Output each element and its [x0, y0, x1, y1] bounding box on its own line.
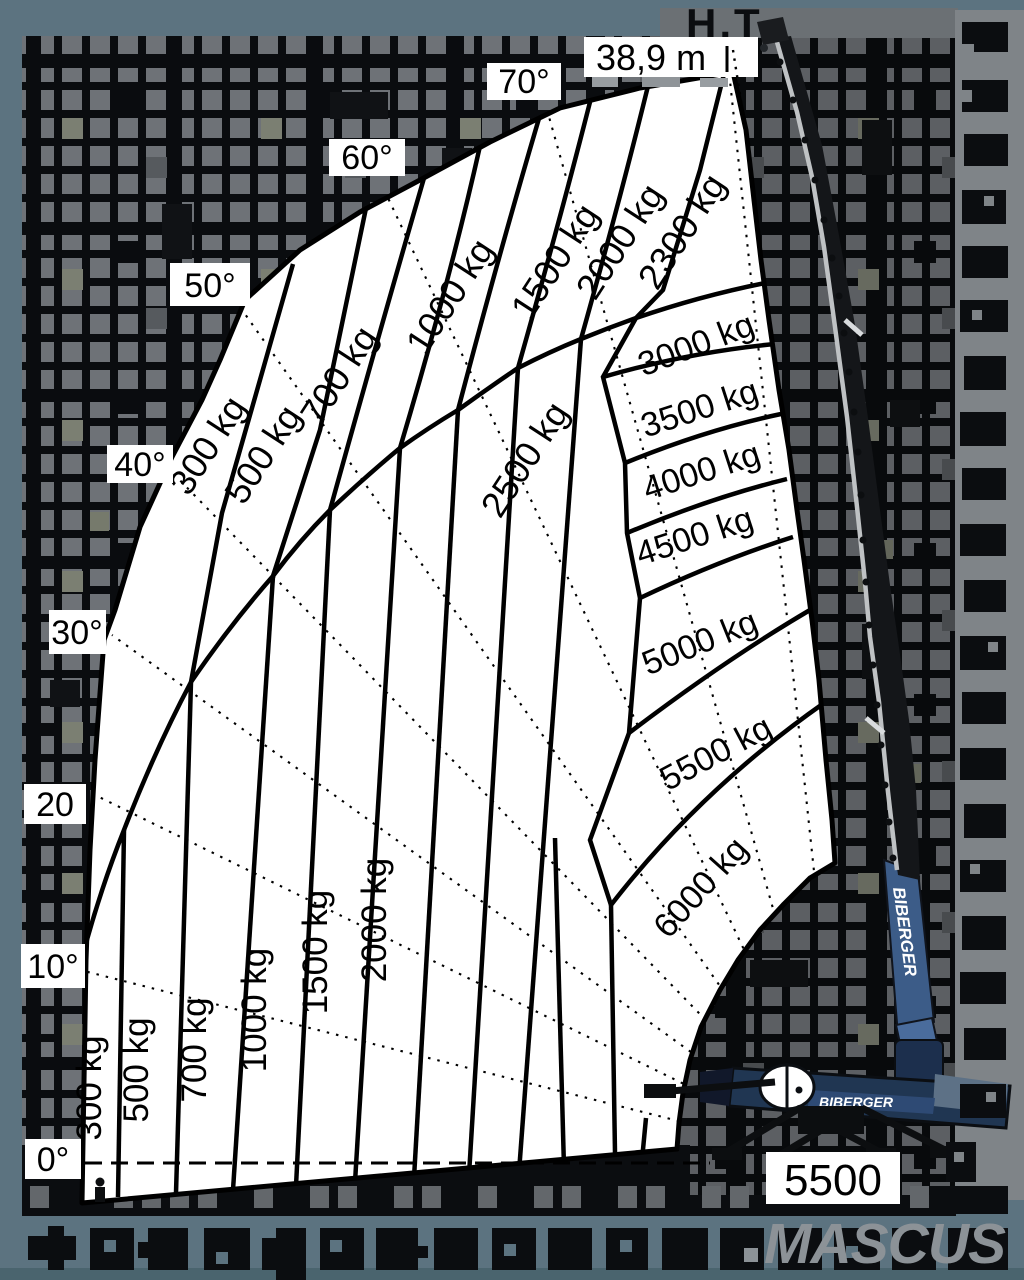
- svg-text:50°: 50°: [184, 267, 235, 305]
- svg-text:40°: 40°: [114, 446, 165, 484]
- svg-text:MASCUS: MASCUS: [764, 1212, 1006, 1276]
- svg-text:1000 kg: 1000 kg: [235, 948, 274, 1073]
- svg-text:70°: 70°: [498, 63, 549, 101]
- svg-text:38,9 m: 38,9 m: [596, 37, 706, 78]
- svg-text:30°: 30°: [51, 614, 102, 652]
- svg-text:2000 kg: 2000 kg: [355, 858, 394, 983]
- svg-text:60°: 60°: [341, 139, 392, 177]
- svg-text:300 kg: 300 kg: [70, 1035, 109, 1140]
- svg-text:1500 kg: 1500 kg: [296, 890, 335, 1015]
- svg-text:700 kg: 700 kg: [175, 997, 214, 1102]
- svg-text:10°: 10°: [27, 948, 78, 986]
- svg-text:500 kg: 500 kg: [117, 1017, 156, 1122]
- svg-text:20: 20: [36, 786, 74, 824]
- svg-text:5500: 5500: [784, 1156, 882, 1205]
- svg-text:0°: 0°: [37, 1141, 70, 1179]
